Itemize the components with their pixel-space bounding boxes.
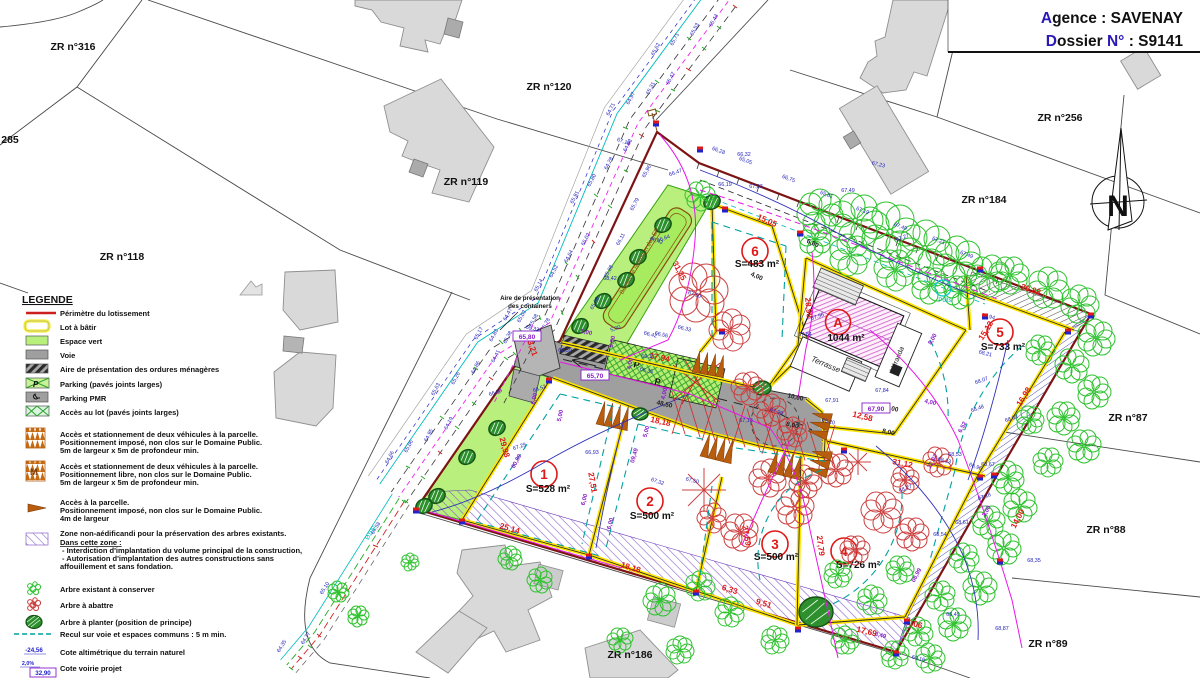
svg-text:Agence : SAVENAY: Agence : SAVENAY xyxy=(1041,10,1184,27)
svg-text:ZR n°119: ZR n°119 xyxy=(444,176,489,188)
svg-text:67,91: 67,91 xyxy=(825,398,839,404)
svg-text:6: 6 xyxy=(751,244,759,259)
svg-text:M: M xyxy=(30,467,38,477)
svg-text:68,42: 68,42 xyxy=(603,276,617,282)
svg-text:S=500 m²: S=500 m² xyxy=(754,552,799,563)
svg-text:65,70: 65,70 xyxy=(587,373,604,380)
svg-text:Voie: Voie xyxy=(60,351,75,360)
svg-text:Arbre à planter (position de p: Arbre à planter (position de principe) xyxy=(60,618,192,627)
svg-text:Lot à bâtir: Lot à bâtir xyxy=(60,323,96,332)
svg-text:Zone non-aédificandi pour la p: Zone non-aédificandi pour la préservatio… xyxy=(60,529,286,538)
svg-text:ZR n°316: ZR n°316 xyxy=(50,41,95,53)
svg-text:A: A xyxy=(833,315,843,330)
svg-text:68,87: 68,87 xyxy=(995,626,1009,632)
svg-text:66,19: 66,19 xyxy=(718,182,732,188)
svg-text:Aire de présentation: Aire de présentation xyxy=(500,295,560,302)
svg-text:LEGENDE: LEGENDE xyxy=(22,294,73,306)
svg-text:Parking PMR: Parking PMR xyxy=(60,394,107,403)
svg-text:66,93: 66,93 xyxy=(585,450,599,456)
svg-text:S=500 m²: S=500 m² xyxy=(630,511,675,522)
svg-text:Cote altimétrique du terrain n: Cote altimétrique du terrain naturel xyxy=(60,648,185,657)
svg-text:des containers: des containers xyxy=(508,303,552,310)
svg-text:N: N xyxy=(1107,190,1129,223)
svg-text:67,90: 67,90 xyxy=(868,406,885,413)
svg-text:285: 285 xyxy=(1,134,19,146)
svg-text:3: 3 xyxy=(771,537,779,552)
svg-text:67,49: 67,49 xyxy=(841,188,855,194)
svg-text:67,84: 67,84 xyxy=(875,388,889,394)
svg-text:66,32: 66,32 xyxy=(737,152,751,158)
svg-text:Périmètre du lotissement: Périmètre du lotissement xyxy=(60,309,150,318)
svg-text:68,61: 68,61 xyxy=(955,520,969,526)
svg-text:68,54: 68,54 xyxy=(933,532,947,538)
svg-text:ZR n°120: ZR n°120 xyxy=(526,81,571,93)
svg-text:ZR n°186: ZR n°186 xyxy=(607,649,652,661)
svg-text:4m de largeur: 4m de largeur xyxy=(60,514,109,523)
svg-text:Espace vert: Espace vert xyxy=(60,337,103,346)
svg-text:65,80: 65,80 xyxy=(519,334,536,341)
svg-text:ZR n°89: ZR n°89 xyxy=(1028,638,1067,650)
svg-text:Arbre à abattre: Arbre à abattre xyxy=(60,601,113,610)
svg-text:ZR n°87: ZR n°87 xyxy=(1108,412,1147,424)
svg-text:Parking (pavés joints larges): Parking (pavés joints larges) xyxy=(60,380,163,389)
svg-text:affouillement et sans fondatio: affouillement et sans fondation. xyxy=(60,562,173,571)
svg-text:68,53: 68,53 xyxy=(948,452,962,458)
svg-text:2,0%: 2,0% xyxy=(22,661,34,667)
svg-text:66,17: 66,17 xyxy=(641,354,655,360)
svg-text:P: P xyxy=(33,380,39,389)
svg-text:S=528 m²: S=528 m² xyxy=(526,484,571,495)
svg-text:68,49: 68,49 xyxy=(946,612,960,618)
svg-text:2: 2 xyxy=(646,494,654,509)
svg-text:Arbre existant à conserver: Arbre existant à conserver xyxy=(60,585,155,594)
svg-text:-24,56: -24,56 xyxy=(25,647,43,654)
svg-text:67,84: 67,84 xyxy=(798,332,812,338)
svg-text:Aire de présentation des ordur: Aire de présentation des ordures ménagèr… xyxy=(60,365,219,374)
svg-text:66,39: 66,39 xyxy=(558,348,572,354)
svg-text:ZR n°118: ZR n°118 xyxy=(100,251,145,263)
svg-text:1044 m²: 1044 m² xyxy=(827,333,865,344)
svg-text:Dossier N° : S9141: Dossier N° : S9141 xyxy=(1046,33,1184,50)
svg-text:67,13: 67,13 xyxy=(739,418,753,424)
svg-text:Puits: Puits xyxy=(938,298,951,304)
svg-text:ZR n°88: ZR n°88 xyxy=(1086,524,1125,536)
svg-text:Recul sur voie et espaces comm: Recul sur voie et espaces communs : 5 m … xyxy=(60,630,226,639)
svg-text:68,67: 68,67 xyxy=(981,462,995,468)
svg-text:Cote voirie projet: Cote voirie projet xyxy=(60,664,122,673)
svg-text:ZR n°184: ZR n°184 xyxy=(961,194,1006,206)
svg-text:S=483 m²: S=483 m² xyxy=(735,259,780,270)
svg-text:5: 5 xyxy=(996,325,1004,340)
svg-text:5m de largeur x 5m de profonde: 5m de largeur x 5m de profondeur min. xyxy=(60,478,199,487)
svg-text:1: 1 xyxy=(540,467,548,482)
svg-text:5m de largeur x 5m de profonde: 5m de largeur x 5m de profondeur min. xyxy=(60,446,199,455)
svg-text:32,90: 32,90 xyxy=(35,670,51,677)
svg-text:Accès au lot (pavés joints lar: Accès au lot (pavés joints larges) xyxy=(60,408,179,417)
svg-text:ZR n°256: ZR n°256 xyxy=(1037,112,1082,124)
svg-text:68,35: 68,35 xyxy=(1027,558,1041,564)
svg-text:67,33: 67,33 xyxy=(749,184,763,190)
